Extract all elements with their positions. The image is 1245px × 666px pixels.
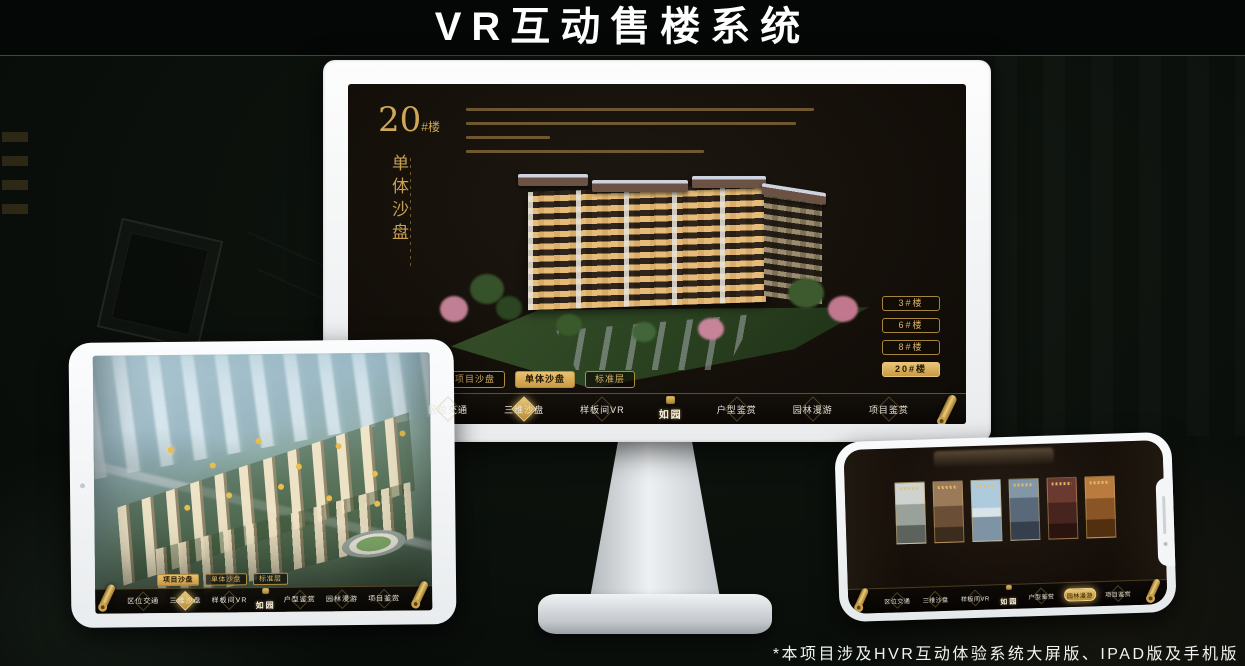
nav-item-location[interactable]: 区位交通 — [426, 403, 470, 416]
camera-icon — [80, 483, 85, 488]
gallery-panel-gate[interactable] — [1046, 477, 1078, 540]
tablet-nav-item-3d-sandtable[interactable]: 三维沙盘 — [167, 596, 203, 606]
phone-nav-item-3d-sandtable[interactable]: 三维沙盘 — [920, 594, 950, 604]
tablet-nav-item-project-view[interactable]: 项目鉴赏 — [366, 594, 402, 604]
seal-icon — [262, 587, 269, 593]
phone-nav-item-showroom-vr[interactable]: 样板间VR — [959, 593, 992, 603]
tablet-sandtable-tabs: 项目沙盘 单体沙盘 标准层 — [157, 573, 288, 586]
tablet-nav-item-showroom-vr[interactable]: 样板间VR — [210, 595, 250, 605]
ceiling-beam — [934, 447, 1054, 467]
phone-screen: 区位交通 三维沙盘 样板间VR 如园 户型鉴赏 园林漫游 项目鉴赏 — [844, 440, 1168, 614]
building-selector: 3#楼 6#楼 8#楼 20#楼 — [882, 296, 940, 384]
phone-nav-item-location[interactable]: 区位交通 — [882, 595, 912, 605]
gallery-panel-courtyard[interactable] — [895, 482, 927, 545]
tablet-nav-item-garden-roam[interactable]: 园林漫游 — [324, 594, 360, 604]
building-button-3[interactable]: 3#楼 — [882, 296, 940, 311]
background-plaque-frame — [97, 218, 224, 351]
tablet-tab-project-sandtable[interactable]: 项目沙盘 — [157, 574, 199, 586]
tab-standard-floor[interactable]: 标准层 — [585, 371, 635, 388]
building-render — [436, 146, 888, 396]
nav-item-3d-sandtable[interactable]: 三维沙盘 — [502, 403, 546, 416]
scene-gallery — [895, 476, 1117, 545]
nav-item-floorplans[interactable]: 户型鉴赏 — [715, 403, 759, 416]
phone-notch — [1156, 478, 1176, 566]
phone-device: 区位交通 三维沙盘 样板间VR 如园 户型鉴赏 园林漫游 项目鉴赏 — [834, 432, 1176, 622]
tablet-navbar: 区位交通 三维沙盘 样板间VR 如园 户型鉴赏 园林漫游 项目鉴赏 — [95, 585, 432, 614]
tab-single-sandtable[interactable]: 单体沙盘 — [515, 371, 575, 388]
nav-item-project-view[interactable]: 项目鉴赏 — [867, 403, 911, 416]
seal-icon — [1006, 585, 1012, 590]
phone-brand-logo: 如园 — [1000, 585, 1019, 610]
vertical-divider — [410, 156, 411, 266]
footnote-text: *本项目涉及HVR互动体验系统大屏版、IPAD版及手机版 — [773, 640, 1239, 664]
speaker-icon — [1162, 496, 1166, 534]
nav-item-showroom-vr[interactable]: 样板间VR — [578, 403, 627, 416]
gallery-panel-interior[interactable] — [1084, 476, 1116, 539]
tablet-tab-standard-floor[interactable]: 标准层 — [253, 573, 288, 585]
tablet-bottom-bar: 项目沙盘 单体沙盘 标准层 区位交通 三维沙盘 样板间VR 如园 户型鉴赏 园林… — [95, 570, 432, 614]
phone-nav-item-project-view[interactable]: 项目鉴赏 — [1103, 589, 1133, 599]
scroll-icon[interactable] — [937, 394, 958, 424]
gallery-panel-building[interactable] — [1008, 478, 1040, 541]
phone-nav-item-garden-roam[interactable]: 园林漫游 — [1065, 590, 1095, 600]
gallery-panel-skyline[interactable] — [971, 479, 1003, 542]
monitor-stand-neck — [590, 438, 720, 598]
block-title: 20#楼 — [378, 100, 440, 140]
sandtable-tabs: 项目沙盘 单体沙盘 标准层 — [445, 371, 635, 388]
block-subtitle: 单体沙盘 — [386, 154, 411, 246]
tablet-brand-logo: 如园 — [255, 587, 275, 612]
block-number-suffix: #楼 — [421, 120, 440, 134]
nav-item-garden-roam[interactable]: 园林漫游 — [791, 403, 835, 416]
tablet-device: 项目沙盘 单体沙盘 标准层 区位交通 三维沙盘 样板间VR 如园 户型鉴赏 园林… — [69, 339, 457, 628]
promo-canvas: VR互动售楼系统 20#楼 单体沙盘 3#楼 6#楼 8#楼 — [0, 0, 1245, 666]
tab-project-sandtable[interactable]: 项目沙盘 — [445, 371, 505, 388]
brand-logo-text: 如园 — [659, 410, 683, 421]
building-button-8[interactable]: 8#楼 — [882, 340, 940, 355]
block-number: 20 — [378, 100, 421, 140]
building-button-20[interactable]: 20#楼 — [882, 362, 940, 377]
monitor-stand-base — [538, 594, 772, 634]
phone-brand-logo-text: 如园 — [1000, 597, 1018, 607]
building-button-6[interactable]: 6#楼 — [882, 318, 940, 333]
background-gold-text-marks — [2, 118, 28, 214]
tablet-nav-item-floorplans[interactable]: 户型鉴赏 — [282, 594, 318, 604]
seal-icon — [666, 396, 675, 404]
page-title: VR互动售楼系统 — [0, 0, 1245, 56]
gallery-panel-terrace[interactable] — [933, 480, 965, 543]
tablet-brand-logo-text: 如园 — [256, 599, 276, 609]
tablet-nav-item-location[interactable]: 区位交通 — [125, 596, 161, 606]
brand-logo: 如园 — [659, 396, 683, 423]
background-building-silhouettes — [995, 56, 1245, 436]
camera-icon — [1164, 542, 1168, 546]
tablet-screen: 项目沙盘 单体沙盘 标准层 区位交通 三维沙盘 样板间VR 如园 户型鉴赏 园林… — [93, 352, 433, 614]
building-front-facade — [528, 184, 766, 310]
phone-nav-item-floorplans[interactable]: 户型鉴赏 — [1026, 591, 1056, 601]
tablet-tab-single-sandtable[interactable]: 单体沙盘 — [205, 573, 247, 585]
